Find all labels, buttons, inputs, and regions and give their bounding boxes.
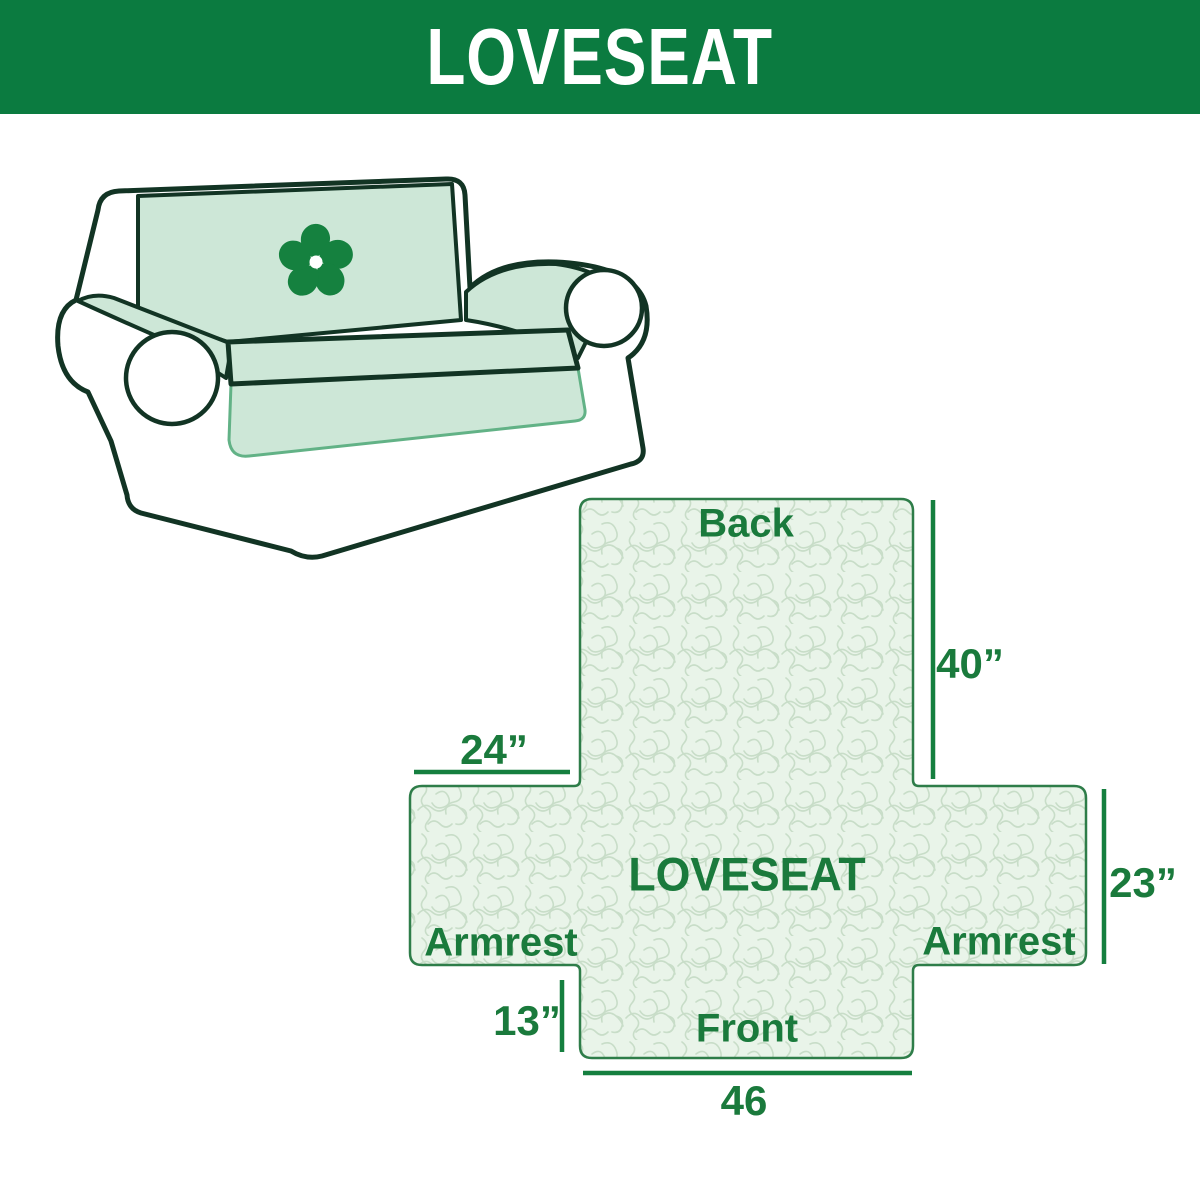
sofa-left-arm-roll [126,332,218,424]
label-back: Back [698,502,794,547]
label-armrest-right: Armrest [922,920,1075,965]
loveseat-illustration [58,179,648,557]
label-armrest-left: Armrest [424,921,577,966]
dim-front-height: 13” [493,997,561,1045]
cover-cross-outline [410,499,1086,1058]
label-front: Front [696,1007,798,1052]
dim-front-width: 46 [721,1077,768,1125]
sofa-right-arm-roll [566,270,642,346]
dim-armrest-width: 24” [460,726,528,774]
artwork-canvas [0,0,1200,1200]
size-diagram-shape [410,499,1104,1073]
dim-side-height: 23” [1109,859,1177,907]
label-center: LOVESEAT [628,847,865,902]
dim-back-height: 40” [936,640,1004,688]
